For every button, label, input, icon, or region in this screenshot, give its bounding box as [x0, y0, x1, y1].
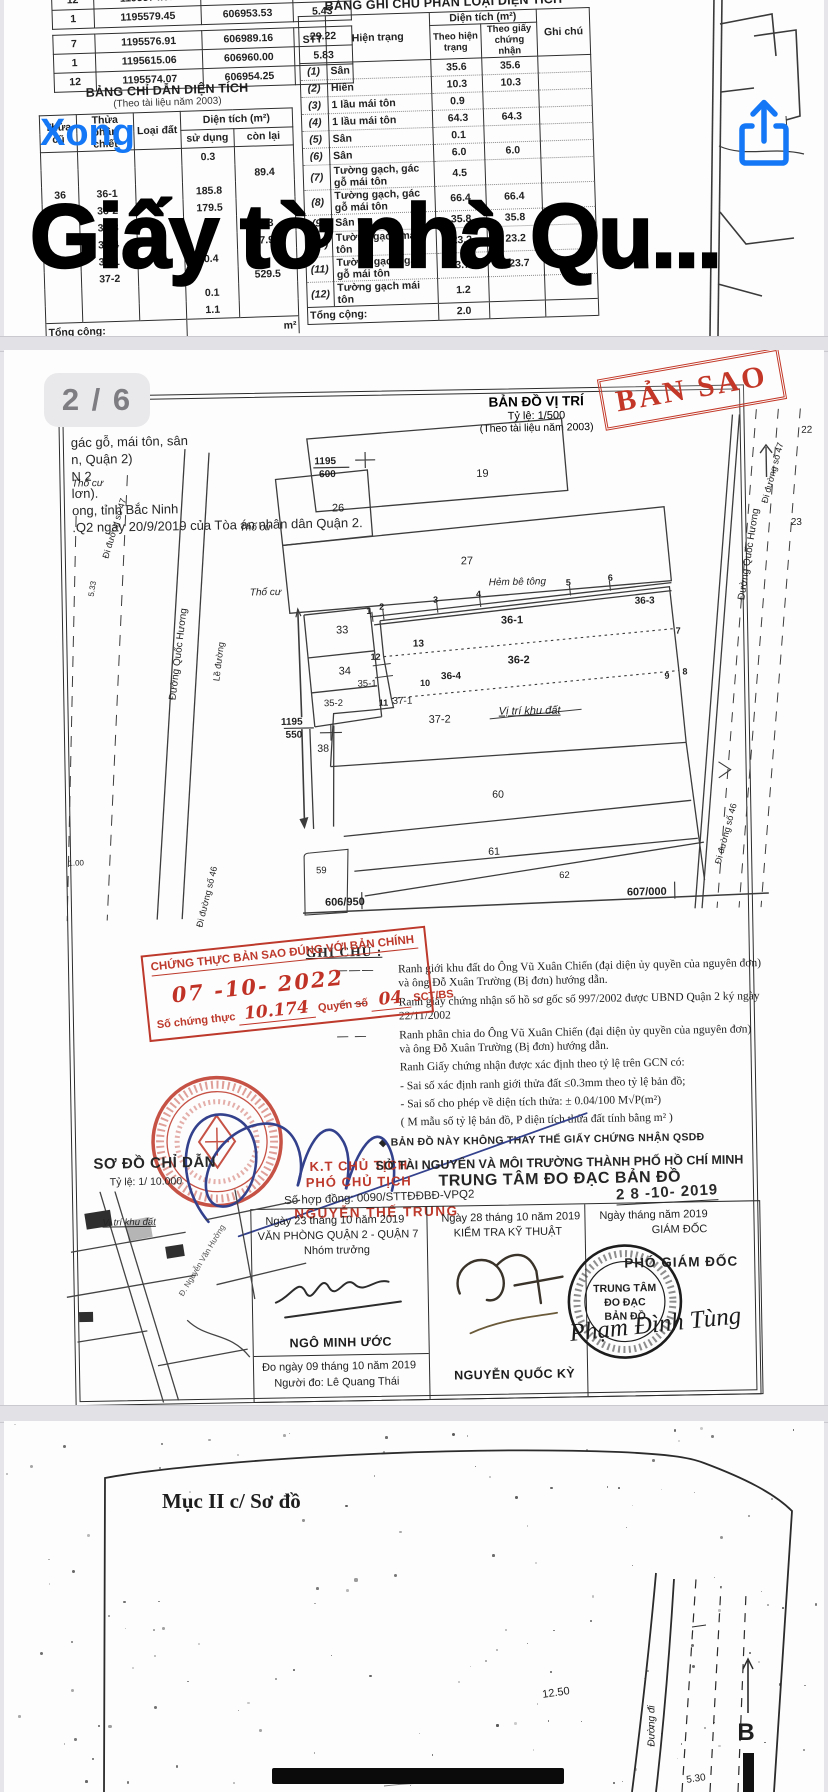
map-label: 600 [319, 469, 336, 480]
cell [45, 288, 82, 306]
cell [45, 305, 82, 324]
screen: { "viewer": { "done_label": "Xong", "tit… [0, 0, 828, 1792]
col-header: STT [298, 16, 326, 64]
cell: 10.3 [431, 75, 483, 94]
document-page-2: BẢN ĐỒ VỊ TRÍ Tỷ lệ: 1/500 (Theo tài liệ… [4, 350, 824, 1405]
cell: (6) [302, 148, 330, 166]
map-label: 1195 [314, 456, 336, 467]
map-label: 1.00 [68, 858, 84, 867]
cell [134, 148, 181, 167]
cell: (5) [302, 131, 330, 149]
cell [182, 164, 236, 183]
cell [538, 54, 591, 73]
cell [139, 285, 186, 303]
cell: (1) [300, 63, 328, 81]
cell [538, 71, 591, 90]
map-label: Vị trí khu đất [499, 705, 561, 718]
map-label: Hẻm bê tông [489, 576, 546, 588]
map-label: 12.50 [542, 1685, 571, 1701]
cell [81, 286, 139, 305]
cell [234, 145, 294, 164]
map-label: Thổ cư [250, 587, 282, 599]
cell: 1195579.45 [94, 6, 202, 28]
map-label: 1 [366, 606, 371, 616]
map-label: 62 [559, 870, 570, 881]
map-label: B [737, 1719, 754, 1747]
total-unit: m² [187, 316, 300, 336]
col3-date: Ngày tháng năm 2019 [599, 1208, 707, 1222]
cell: (2) [300, 80, 328, 98]
cell: 0.3 [181, 147, 235, 166]
map-label: Đường đi [647, 1705, 658, 1746]
map-label: 36-4 [441, 671, 461, 682]
map-label: 61 [488, 846, 500, 858]
cell [82, 303, 140, 322]
col-header: Hiện trạng [325, 13, 430, 63]
page-indicator: 2 / 6 [44, 373, 150, 427]
cell: 1.1 [186, 300, 240, 319]
map-label: 23 [791, 517, 802, 528]
col2-date: Ngày 28 tháng 10 năm 2019 [441, 1210, 580, 1224]
map-label: 9 [664, 671, 669, 681]
map-label: 6 [608, 573, 613, 583]
map-label: 4 [476, 589, 481, 599]
cell [539, 88, 592, 107]
map-label: 8 [682, 666, 687, 676]
map-label: 34 [339, 665, 351, 677]
col2-name: NGUYỄN QUỐC KỲ [454, 1366, 575, 1382]
map-label: Thổ cư [240, 522, 272, 534]
cert-mid: Quyển số [317, 997, 368, 1014]
cell [484, 124, 540, 143]
bottom-labels: 12.505.30Đường điB [4, 1421, 824, 1792]
map-label: 36-3 [635, 595, 655, 606]
map-labels: 192627Hẻm bê tông36-136-336-236-437-137-… [56, 408, 824, 921]
map-label: Thổ cư [72, 478, 104, 490]
map-label: 1195 [281, 717, 303, 728]
cell: (4) [301, 114, 329, 132]
map-label: 33 [336, 624, 348, 636]
document-page-3: Mục II c/ Sơ đồ 12.505.30Đường điB [4, 1421, 824, 1792]
map-label: 36-1 [501, 614, 523, 626]
map-label: 12 [371, 652, 381, 662]
cell [541, 156, 595, 183]
cell: 35.6 [430, 58, 482, 77]
map-label: 37-1 [392, 696, 412, 707]
map-label: 35-1 [357, 678, 376, 689]
col-header: Loại đất [133, 111, 181, 149]
col-header: Ghi chú [536, 7, 590, 56]
cell: 64.3 [432, 109, 484, 128]
cell [239, 298, 299, 317]
map-label: 3 [433, 595, 438, 605]
map-label: 7 [676, 625, 681, 635]
col-header: Theo giấy chứng nhận [481, 22, 538, 58]
stamp-line2: ĐO ĐẠC [604, 1296, 646, 1309]
cell: 0.1 [432, 126, 484, 145]
map-label: Đi đường số 47 [100, 497, 128, 560]
map-label: 60 [492, 789, 504, 801]
total-value: 2.0 [438, 302, 490, 321]
share-icon[interactable] [735, 96, 793, 170]
map-label: 5 [566, 577, 571, 587]
col-header: sử dụng [181, 128, 235, 148]
col3-role: GIÁM ĐỐC [652, 1223, 708, 1236]
cell: 7 [53, 34, 95, 54]
legend-text: Ranh giới khu đất do Ông Vũ Xuân Chiến (… [398, 956, 762, 991]
total-label: Tổng cộng: [307, 303, 438, 324]
cell: 6.0 [485, 141, 541, 160]
col-header: Theo hiện trạng [429, 24, 482, 60]
map-label: 37-2 [429, 714, 451, 726]
cell [483, 90, 539, 109]
cell: 89.4 [235, 162, 295, 181]
cell: Tường gạch, gác gỗ mái tôn [330, 161, 434, 189]
map-label: 36-2 [508, 654, 530, 666]
cell: 6.0 [433, 143, 485, 162]
map-label: 22 [801, 425, 812, 436]
map-label: 35-2 [324, 698, 343, 709]
cell: 10.3 [483, 73, 539, 92]
map-label: 13 [413, 638, 424, 649]
file-title-overlay: Giấy tờ nhà Qu... [30, 192, 720, 282]
col-header: còn lại [234, 126, 294, 146]
map-label: 5.30 [686, 1772, 707, 1786]
map-label: 2 [379, 602, 384, 612]
map-label: Đường Quốc Hương [736, 508, 761, 601]
cell [541, 139, 594, 158]
mini-map-site-label: Vị trí khu đất [102, 1217, 156, 1229]
cell: 4.5 [433, 160, 486, 187]
cell: 606953.53 [201, 3, 293, 25]
map-label: 27 [461, 555, 473, 567]
map-label: Đường Quốc Hương [167, 608, 189, 701]
signature-nguyen-quoc-ky [444, 1236, 581, 1348]
cell [485, 158, 542, 185]
cell [135, 166, 182, 184]
cell: 35.6 [482, 56, 538, 75]
map-label: Lề đường [211, 641, 226, 681]
cell: 1 [53, 53, 95, 73]
map-label: 5.33 [87, 580, 98, 597]
map-label: 38 [317, 743, 329, 755]
cell: 64.3 [484, 107, 540, 126]
cell [539, 105, 592, 124]
map-label: 19 [476, 468, 488, 480]
stamp-line1: TRUNG TÂM [593, 1281, 656, 1295]
cell [540, 122, 593, 141]
map-label: 59 [316, 865, 327, 876]
cell: (3) [301, 97, 329, 115]
map-label: 10 [420, 678, 430, 688]
cell [41, 169, 78, 187]
cell: 1 [52, 9, 94, 29]
done-button[interactable]: Xong [40, 112, 135, 155]
map-label: 11 [379, 698, 389, 708]
mini-map-scale: Tỷ lệ: 1/ 10.000 [110, 1175, 183, 1188]
cell [78, 167, 136, 186]
map-label: 26 [332, 502, 344, 514]
map-label: 606/950 [325, 896, 365, 909]
map-label: 550 [286, 730, 303, 741]
map-label: Đi đường số 46 [713, 802, 739, 865]
cert-book: 04 [370, 987, 412, 1012]
cell: 0.9 [431, 92, 483, 111]
cell [139, 302, 186, 321]
map-label: 607/000 [627, 886, 667, 899]
mini-map-title: SƠ ĐỒ CHỈ DẪN [93, 1154, 216, 1173]
document-page-1: 111195568.69606954.98121195574.07606954.… [4, 0, 824, 336]
signature-table: Ngày 23 tháng 10 năm 2019 VĂN PHÒNG QUẬN… [250, 1200, 763, 1403]
north-arrow-icon [753, 439, 780, 479]
